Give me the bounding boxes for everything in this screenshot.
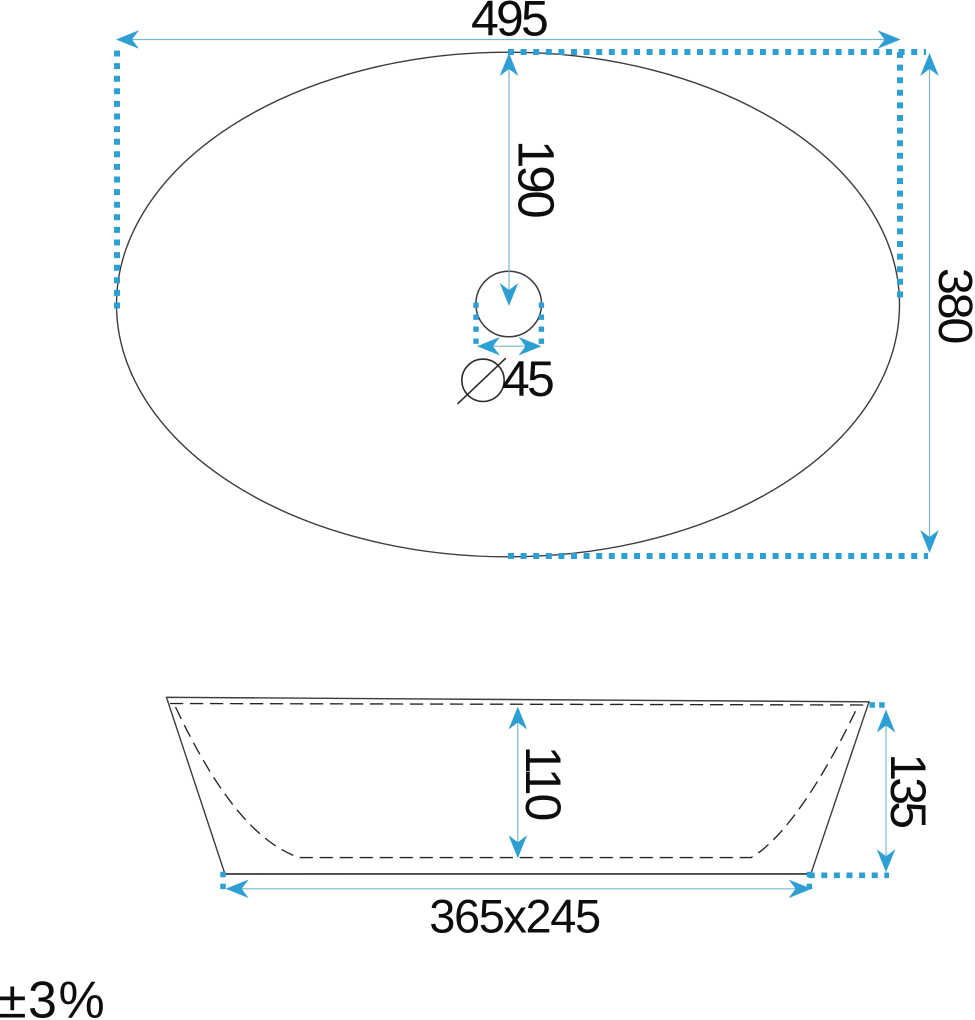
svg-text:495: 495: [471, 0, 547, 47]
svg-text:380: 380: [928, 268, 975, 344]
svg-text:135: 135: [880, 753, 936, 827]
svg-text:±3%: ±3%: [0, 972, 106, 1020]
svg-text:190: 190: [508, 140, 565, 217]
svg-text:365x245: 365x245: [429, 890, 600, 943]
svg-text:110: 110: [515, 746, 571, 820]
svg-text:45: 45: [502, 351, 553, 407]
